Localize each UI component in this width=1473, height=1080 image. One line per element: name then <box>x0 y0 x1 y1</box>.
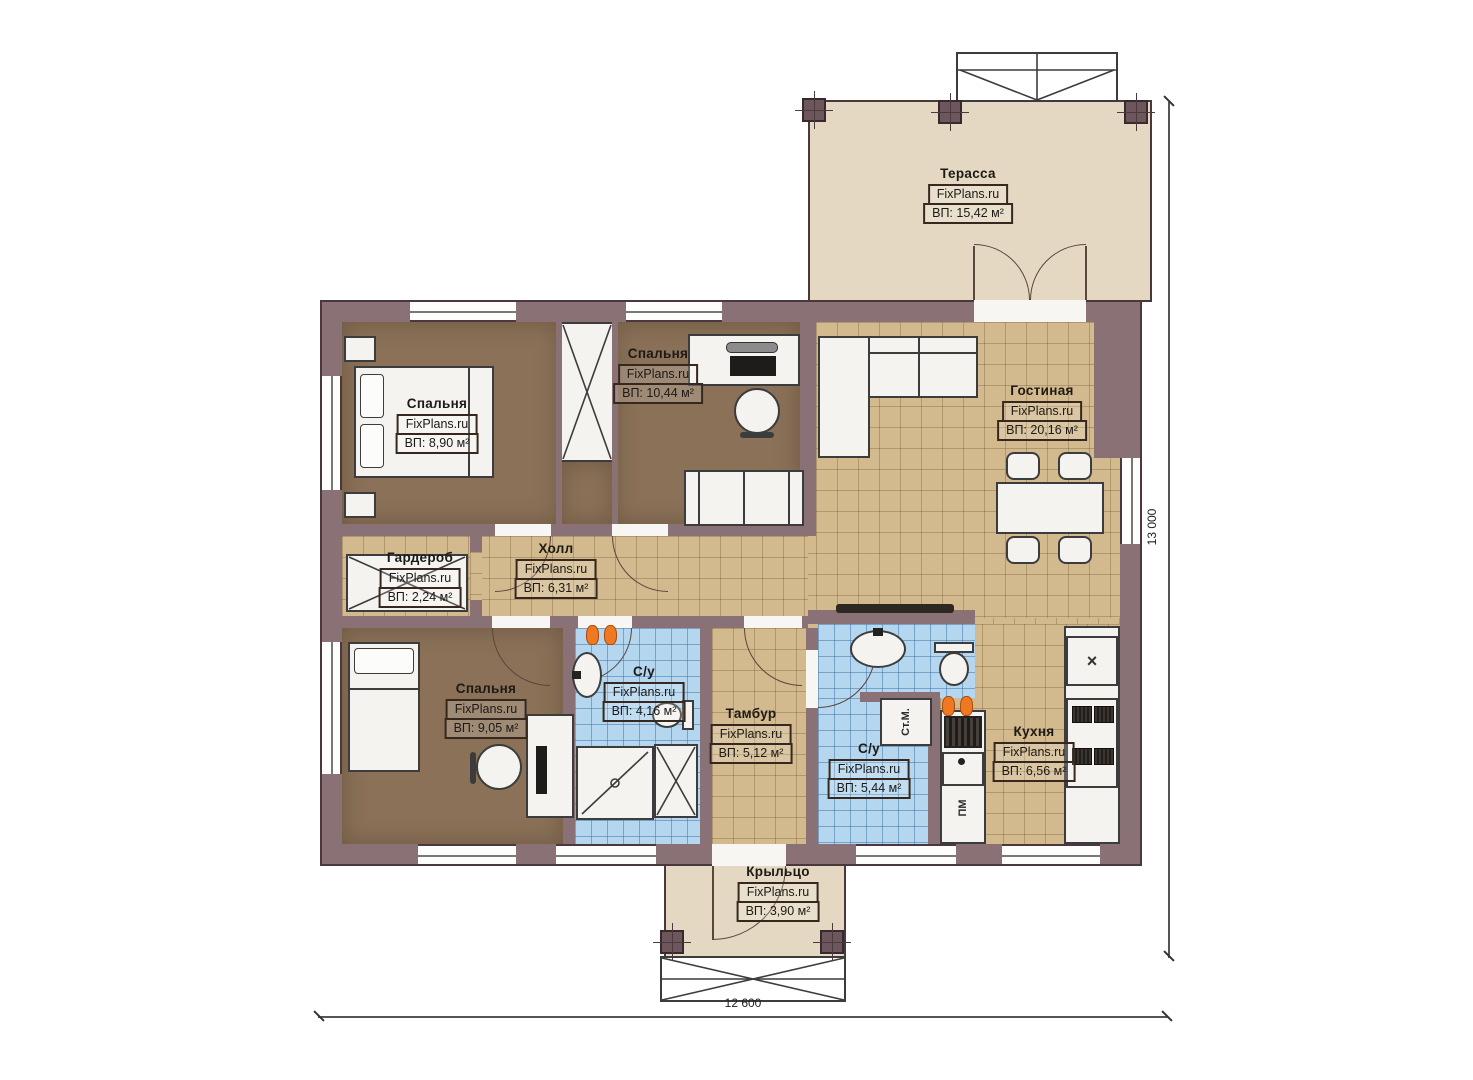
terrace-column <box>1124 100 1148 124</box>
chair-back <box>470 752 476 784</box>
room-label-bedroom2: Спальня FixPlans.ru ВП: 10,44 м² <box>613 346 703 404</box>
watermark: FixPlans.ru <box>711 724 792 745</box>
slipper <box>586 625 599 645</box>
sofa <box>684 470 804 526</box>
armrest-line <box>788 472 790 524</box>
terrace-column <box>938 100 962 124</box>
room-area: ВП: 2,24 м² <box>379 587 462 608</box>
room-label-kitchen: Кухня FixPlans.ru ВП: 6,56 м² <box>993 724 1076 782</box>
slippers-icon <box>942 696 973 716</box>
dining-chair <box>1006 452 1040 480</box>
armrest-line <box>698 472 700 524</box>
slipper <box>604 625 617 645</box>
entry-door-opening <box>712 844 786 866</box>
room-area: ВП: 8,90 м² <box>396 433 479 454</box>
room-area: ВП: 3,90 м² <box>737 901 820 922</box>
dining-chair <box>1058 452 1092 480</box>
door-opening <box>495 524 551 536</box>
room-label-bath2: С/у FixPlans.ru ВП: 5,44 м² <box>828 741 911 799</box>
room-area: ВП: 6,56 м² <box>993 761 1076 782</box>
single-bed <box>348 642 420 772</box>
watermark: FixPlans.ru <box>380 568 461 589</box>
kitchen-sink: × <box>1066 636 1118 686</box>
watermark: FixPlans.ru <box>618 364 699 385</box>
cushion-line <box>918 338 920 396</box>
blanket-line <box>350 688 418 690</box>
room-label-living: Гостиная FixPlans.ru ВП: 20,16 м² <box>997 383 1087 441</box>
door-opening <box>612 524 668 536</box>
window <box>410 300 516 322</box>
watermark: FixPlans.ru <box>397 414 478 435</box>
pillow <box>360 374 384 418</box>
room-name: Терасса <box>940 166 996 181</box>
watermark: FixPlans.ru <box>829 759 910 780</box>
window <box>556 844 656 866</box>
laptop <box>730 356 776 376</box>
watermark: FixPlans.ru <box>516 559 597 580</box>
corner-sofa-chaise <box>818 336 870 458</box>
closet-floor <box>560 462 614 524</box>
dining-table <box>996 482 1104 534</box>
room-name: Спальня <box>628 346 688 361</box>
terrace-column <box>802 98 826 122</box>
kitchen-sink-basin <box>942 752 984 786</box>
door-opening <box>492 616 550 628</box>
door-leaf <box>1085 246 1087 300</box>
room-name: Спальня <box>407 396 467 411</box>
closet-niche <box>560 322 614 462</box>
room-area: ВП: 5,12 м² <box>710 743 793 764</box>
room-label-bedroom1: Спальня FixPlans.ru ВП: 8,90 м² <box>396 396 479 454</box>
wall <box>342 616 808 628</box>
burner <box>1072 706 1092 723</box>
window <box>320 376 342 490</box>
room-label-bath1: С/у FixPlans.ru ВП: 4,16 м² <box>603 664 686 722</box>
dining-chair <box>1006 536 1040 564</box>
laptop-lid <box>726 342 778 353</box>
dimension-label-right: 13 000 <box>1145 497 1159 557</box>
room-area: ВП: 4,16 м² <box>603 701 686 722</box>
nightstand <box>344 336 376 362</box>
faucet <box>873 628 883 636</box>
dimension-line-right <box>1168 102 1170 958</box>
terrace-door-opening <box>974 300 1086 322</box>
room-label-wardrobe: Гардероб FixPlans.ru ВП: 2,24 м² <box>379 550 462 608</box>
room-name: С/у <box>633 664 655 679</box>
room-label-terrace: Терасса FixPlans.ru ВП: 15,42 м² <box>923 166 1013 224</box>
window <box>856 844 956 866</box>
window <box>1120 458 1142 544</box>
room-name: Крыльцо <box>746 864 810 879</box>
washing-machine: Ст.М. <box>880 698 932 746</box>
porch-column <box>660 930 684 954</box>
dining-chair <box>1058 536 1092 564</box>
burner <box>1094 748 1114 765</box>
window <box>320 642 342 774</box>
room-area: ВП: 9,05 м² <box>445 718 528 739</box>
door-opening <box>806 650 818 708</box>
room-area: ВП: 15,42 м² <box>923 203 1013 224</box>
floor-plan: 12 600 13 000 <box>0 0 1473 1080</box>
pillow <box>354 648 414 674</box>
shower <box>576 746 654 820</box>
room-label-hall: Холл FixPlans.ru ВП: 6,31 м² <box>515 541 598 599</box>
wall <box>556 322 562 524</box>
door-leaf <box>973 246 975 300</box>
watermark: FixPlans.ru <box>446 699 527 720</box>
dimension-line-bottom <box>318 1016 1168 1018</box>
office-chair <box>476 744 522 790</box>
faucet <box>958 758 965 765</box>
room-name: Тамбур <box>726 706 777 721</box>
slippers-icon <box>586 625 617 645</box>
slipper <box>942 696 955 716</box>
watermark: FixPlans.ru <box>928 184 1009 205</box>
room-area: ВП: 10,44 м² <box>613 383 703 404</box>
nightstand <box>344 492 376 518</box>
desk <box>688 334 800 386</box>
watermark: FixPlans.ru <box>738 882 819 903</box>
door-leaf <box>712 866 714 940</box>
office-chair <box>734 388 780 434</box>
room-label-bedroom3: Спальня FixPlans.ru ВП: 9,05 м² <box>445 681 528 739</box>
window <box>626 300 722 322</box>
dishwasher-label: ПМ <box>943 789 983 827</box>
room-name: Гостиная <box>1010 383 1073 398</box>
hob <box>944 716 982 748</box>
stairs-icon <box>956 52 1118 107</box>
watermark: FixPlans.ru <box>1002 401 1083 422</box>
room-name: Кухня <box>1014 724 1055 739</box>
burner <box>1094 706 1114 723</box>
sliding-door <box>836 604 954 613</box>
chair-back <box>740 432 774 438</box>
room-area: ВП: 20,16 м² <box>997 420 1087 441</box>
room-area: ВП: 6,31 м² <box>515 578 598 599</box>
monitor <box>536 746 547 794</box>
cushion-line <box>743 472 745 524</box>
porch-column <box>820 930 844 954</box>
closet-cabinet <box>654 744 698 818</box>
faucet <box>572 671 581 679</box>
room-name: Холл <box>538 541 573 556</box>
door-opening <box>744 616 802 628</box>
watermark: FixPlans.ru <box>604 682 685 703</box>
room-label-porch: Крыльцо FixPlans.ru ВП: 3,90 м² <box>737 864 820 922</box>
watermark: FixPlans.ru <box>994 742 1075 763</box>
desk <box>526 714 574 818</box>
room-area: ВП: 5,44 м² <box>828 778 911 799</box>
slipper <box>960 696 973 716</box>
room-name: Спальня <box>456 681 516 696</box>
toilet <box>939 652 969 686</box>
room-name: С/у <box>858 741 880 756</box>
window <box>1002 844 1100 866</box>
room-label-tambour: Тамбур FixPlans.ru ВП: 5,12 м² <box>710 706 793 764</box>
dimension-label-bottom: 12 600 <box>318 996 1168 1010</box>
door-opening <box>470 552 482 600</box>
window <box>418 844 516 866</box>
pillow <box>360 424 384 468</box>
room-name: Гардероб <box>387 550 453 565</box>
wall-pilaster <box>1094 322 1120 458</box>
